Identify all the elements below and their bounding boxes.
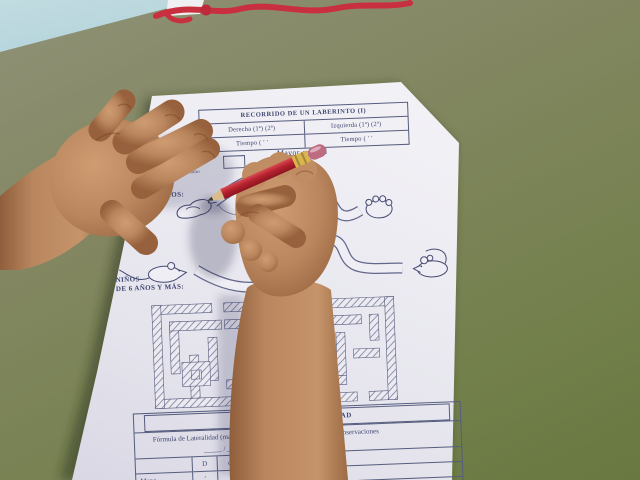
photo-scene: RECORRIDO DE UN LABERINTO (I) Derecha (1… <box>0 0 640 480</box>
hands-layer <box>0 0 640 480</box>
